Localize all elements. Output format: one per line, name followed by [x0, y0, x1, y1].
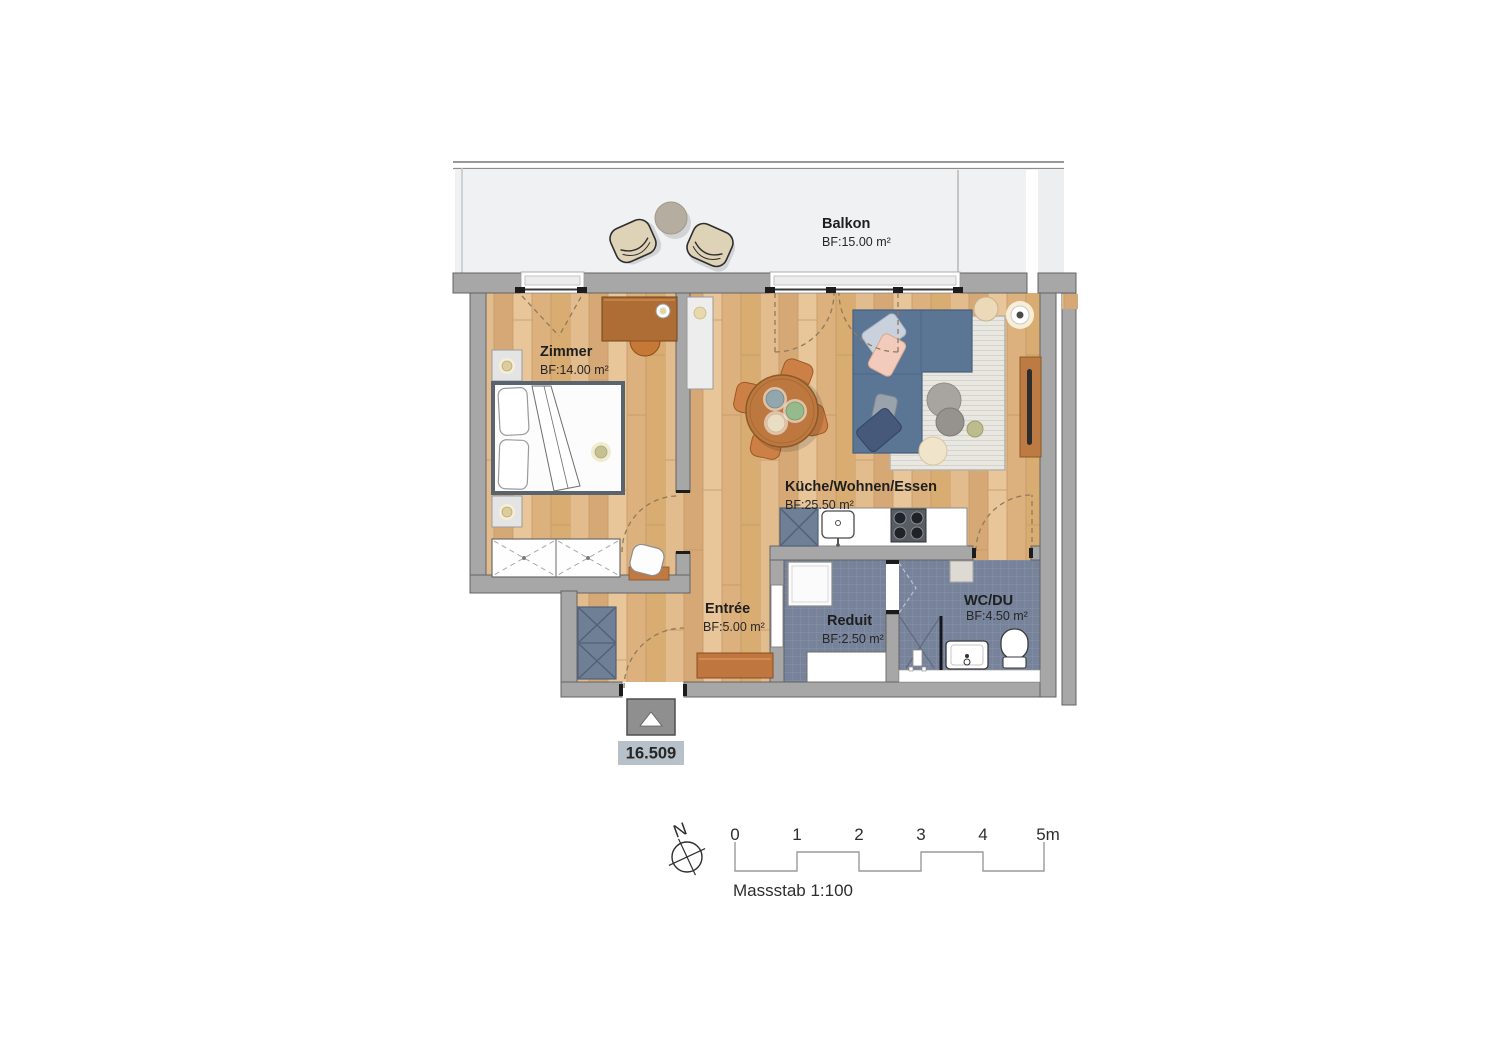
- plate: [766, 390, 784, 408]
- pouf: [919, 437, 947, 465]
- reduit-cabinet: [807, 652, 886, 682]
- reduit-sliding-door: [771, 585, 783, 647]
- wall-right: [1040, 293, 1056, 697]
- scale-caption: Massstab 1:100: [733, 881, 853, 900]
- north-compass: N: [660, 818, 713, 883]
- floor-lamp: [1006, 301, 1034, 329]
- label-kueche: Küche/Wohnen/Essen: [785, 479, 937, 495]
- scale-bar-line: [735, 842, 1044, 871]
- nightstand-top: [492, 350, 522, 381]
- label-balkon-area: BF:15.00 m²: [822, 235, 891, 249]
- label-entree-area: BF:5.00 m²: [703, 620, 765, 634]
- label-reduit: Reduit: [827, 613, 872, 629]
- side-table: [974, 297, 998, 321]
- shower-column: [913, 650, 922, 666]
- wall-left: [470, 293, 486, 593]
- wall-zimmer-right-lower: [676, 552, 690, 575]
- wall-kitchen-left: [770, 546, 973, 560]
- washer-tower: [788, 562, 832, 606]
- media-console: [1020, 357, 1041, 457]
- entrance-marker: 16.509: [618, 699, 684, 765]
- bathroom-sink: [946, 641, 988, 669]
- zimmer-wardrobe: [492, 539, 620, 577]
- label-entree: Entrée: [705, 601, 750, 617]
- compass-cross: [660, 830, 713, 883]
- scale-bar: 0 1 2 3 4 5m Massstab 1:100: [730, 825, 1060, 900]
- scale-tick-2: 2: [854, 825, 863, 844]
- plant-pot: [967, 421, 983, 437]
- wall-top-neighbor: [1038, 273, 1076, 293]
- nightstand-bottom: [492, 496, 522, 527]
- bath-wall-face: [899, 670, 1040, 682]
- label-zimmer: Zimmer: [540, 344, 593, 360]
- label-zimmer-area: BF:14.00 m²: [540, 363, 609, 377]
- zimmer-door-threshold: [676, 492, 690, 552]
- stove: [891, 509, 926, 542]
- label-balkon: Balkon: [822, 216, 870, 232]
- neighbor-balcony-floor: [1038, 170, 1064, 274]
- hall-cabinet: [687, 297, 713, 389]
- balcony-area: [453, 162, 1064, 275]
- label-wcdu: WC/DU: [964, 593, 1013, 609]
- label-kueche-area: BF:25.50 m²: [785, 498, 854, 512]
- scale-tick-0: 0: [730, 825, 739, 844]
- label-wcdu-area: BF:4.50 m²: [966, 609, 1028, 623]
- scale-tick-5: 5m: [1036, 825, 1060, 844]
- living-window-band: [765, 272, 963, 293]
- scale-tick-4: 4: [978, 825, 987, 844]
- coffee-table-small: [936, 408, 964, 436]
- floorplan-page: Balkon BF:15.00 m² Zimmer BF:14.00 m² Kü…: [0, 0, 1500, 1060]
- tall-cabinet-fridge: [780, 508, 818, 546]
- wall-bottom-right: [684, 682, 1056, 697]
- plate: [767, 414, 785, 432]
- entree-wardrobe: [578, 607, 616, 679]
- dining-table: [746, 375, 818, 447]
- label-reduit-area: BF:2.50 m²: [822, 632, 884, 646]
- floorplan-drawing: Balkon BF:15.00 m² Zimmer BF:14.00 m² Kü…: [0, 0, 1500, 1060]
- scale-tick-1: 1: [792, 825, 801, 844]
- wall-bottom-left: [561, 682, 622, 697]
- plate: [786, 402, 804, 420]
- bath-shelf: [950, 561, 973, 582]
- unit-number: 16.509: [626, 745, 676, 763]
- neighbor-floor-corner: [1062, 294, 1078, 309]
- wall-entree-left: [561, 591, 577, 697]
- kitchen: [780, 508, 967, 547]
- balcony-floor: [455, 170, 1026, 274]
- pillow: [498, 387, 529, 435]
- bed: [493, 383, 623, 493]
- north-label: N: [670, 818, 689, 841]
- wall-right-neighbor: [1062, 293, 1076, 705]
- entree-bench: [697, 653, 773, 678]
- bath-door-threshold: [973, 546, 1031, 560]
- toilet: [1001, 629, 1028, 668]
- pillow: [498, 440, 529, 490]
- zimmer-window: [515, 272, 587, 293]
- scale-tick-3: 3: [916, 825, 925, 844]
- zimmer-ceiling-light: [591, 442, 611, 462]
- wall-reduit-wc: [886, 614, 899, 682]
